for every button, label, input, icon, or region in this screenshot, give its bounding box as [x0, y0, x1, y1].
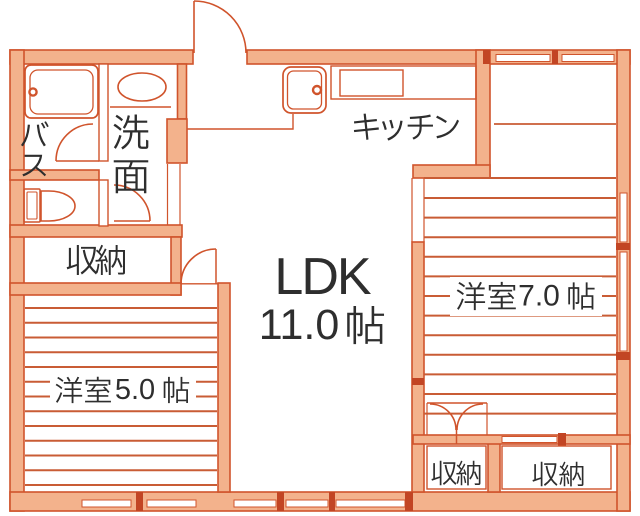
svg-text:11.0: 11.0: [259, 301, 340, 349]
svg-text:7.0: 7.0: [518, 280, 560, 313]
svg-text:5.0: 5.0: [115, 374, 155, 406]
svg-text:LDK: LDK: [274, 248, 371, 306]
